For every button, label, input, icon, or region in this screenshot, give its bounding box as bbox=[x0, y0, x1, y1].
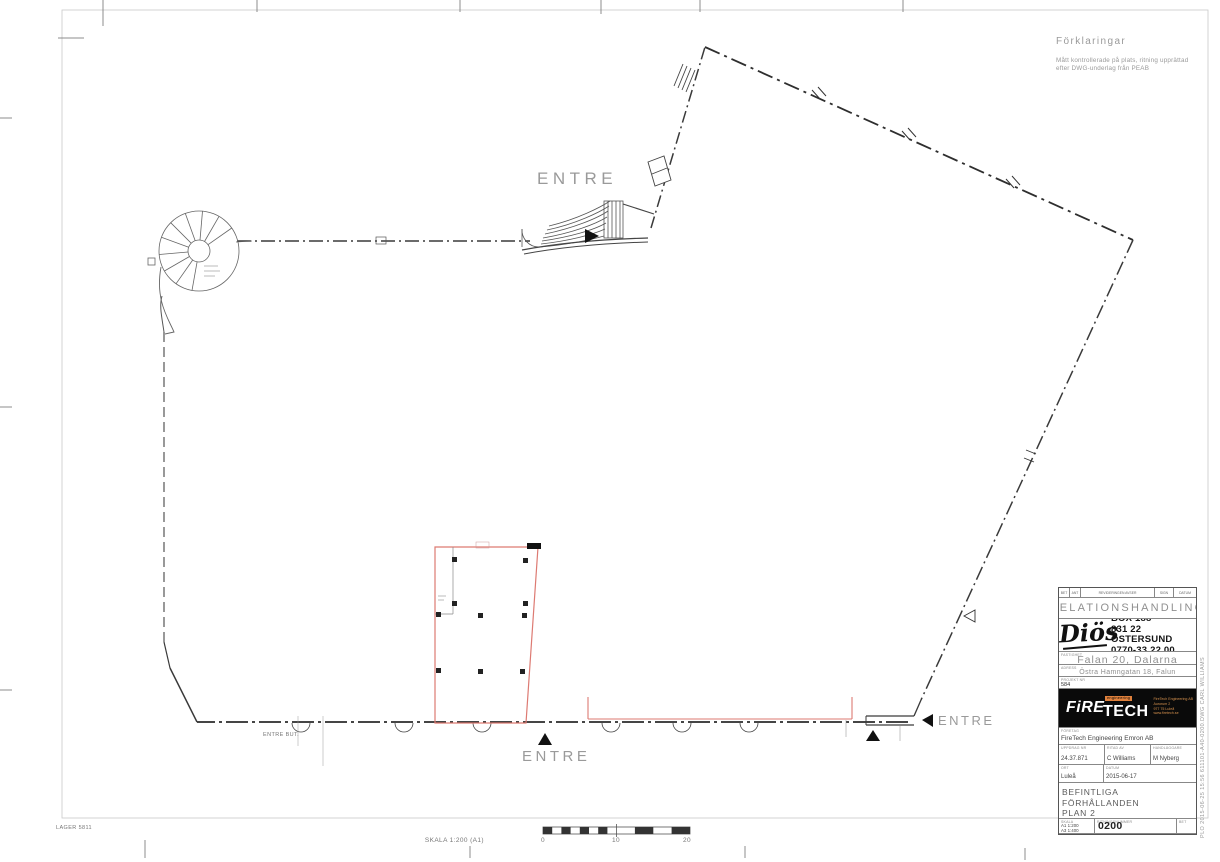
entre-right-label: ENTRE bbox=[938, 713, 995, 728]
dios-logo-text: Diös bbox=[1059, 620, 1119, 645]
assignment-row: UPPDRAG NR 24.37.871 RITAD AV C Williams… bbox=[1059, 745, 1196, 765]
firetech-logo-fire: FiRE bbox=[1066, 699, 1104, 717]
drawn-by-label: RITAD AV bbox=[1107, 746, 1124, 750]
diagonal-wall-ticks bbox=[812, 87, 1020, 188]
legend-line-2: efter DWG-underlag från PEAB bbox=[1056, 65, 1206, 73]
handler-cell: HANDLÄGGARE M Nyberg bbox=[1151, 745, 1196, 764]
entre-bottom-label: ENTRE bbox=[522, 748, 590, 765]
place-value: Luleå bbox=[1061, 774, 1076, 780]
legend-line-1: Mått kontrollerade på plats, ritning upp… bbox=[1056, 57, 1206, 65]
firetech-address: FireTech Engineering AB Aurorum 2 977 75… bbox=[1153, 697, 1193, 716]
address-value: Östra Hamngatan 18, Falun bbox=[1059, 665, 1196, 676]
place-label: ORT bbox=[1061, 766, 1069, 770]
scale-tick-20: 20 bbox=[683, 837, 691, 844]
drawn-by-cell: RITAD AV C Williams bbox=[1105, 745, 1151, 764]
rev-bet-header: BET bbox=[1059, 588, 1070, 597]
entre-butik-label: ENTRE BUT. bbox=[263, 732, 299, 738]
legend-block: Förklaringar Mått kontrollerade på plats… bbox=[1056, 36, 1206, 73]
drawn-by-value: C Williams bbox=[1107, 756, 1135, 762]
assignment-value: 24.37.871 bbox=[1061, 756, 1088, 762]
content-line-1: BEFINTLIGA FÖRHÅLLANDEN bbox=[1062, 787, 1196, 808]
assignment-cell: UPPDRAG NR 24.37.871 bbox=[1059, 745, 1105, 764]
rev-sign-header: SIGN bbox=[1155, 588, 1174, 597]
address-row: ADRESS Östra Hamngatan 18, Falun bbox=[1059, 665, 1196, 677]
date-label: DATUM bbox=[1106, 766, 1119, 770]
scale-tick-0: 0 bbox=[541, 837, 545, 844]
entrance-arrow-bottom bbox=[538, 733, 552, 745]
small-annotation-marks bbox=[204, 266, 220, 276]
date-cell: DATUM 2015-06-17 bbox=[1104, 765, 1196, 782]
document-status: RELATIONSHANDLING bbox=[1059, 602, 1196, 614]
legend-title: Förklaringar bbox=[1056, 36, 1206, 47]
drawing-sheet: ENTRE ENTRE ENTRE ENTRE BUT. LAGER 5811 … bbox=[0, 0, 1220, 862]
client-address: BOX 188 831 22 ÖSTERSUND 0770-33 22 00 bbox=[1111, 619, 1196, 652]
date-value: 2015-06-17 bbox=[1106, 774, 1137, 780]
building-outline bbox=[161, 47, 1133, 722]
floor-plan-canvas: ENTRE ENTRE ENTRE ENTRE BUT. LAGER 5811 … bbox=[0, 0, 1220, 862]
drawing-content-row: BEFINTLIGA FÖRHÅLLANDEN PLAN 2 ÖVERSIKT bbox=[1059, 783, 1196, 819]
revision-header-row: BET ANT REVIDERINGEN AVSER SIGN DATUM bbox=[1059, 588, 1196, 598]
project-row: PROJEKT NR 584 bbox=[1059, 677, 1196, 689]
rev-avser-header: REVIDERINGEN AVSER bbox=[1081, 588, 1155, 597]
red-marked-room bbox=[435, 542, 541, 723]
entrance-arrow-right bbox=[922, 714, 933, 727]
drawing-number-value: 611101-A40-0200 bbox=[1098, 819, 1176, 832]
rev-ant-header: ANT bbox=[1070, 588, 1081, 597]
scale-bar-label: SKALA 1:200 (A1) bbox=[425, 837, 484, 844]
document-status-row: RELATIONSHANDLING bbox=[1059, 598, 1196, 619]
wall-box bbox=[648, 156, 671, 186]
red-marked-wall bbox=[588, 697, 852, 719]
assignment-label: UPPDRAG NR bbox=[1061, 746, 1086, 750]
property-row: FASTIGHET Falan 20, Dalarna bbox=[1059, 652, 1196, 665]
lager-label: LAGER 5811 bbox=[56, 825, 92, 831]
content-line-2: PLAN 2 bbox=[1062, 808, 1196, 819]
entre-butik-lines bbox=[298, 716, 323, 766]
firetech-logo-engineering: engineering bbox=[1105, 696, 1132, 701]
hatch-element bbox=[674, 64, 695, 92]
fold-marks bbox=[0, 0, 1025, 860]
firetech-logo-tech: TECH bbox=[1103, 703, 1149, 721]
place-cell: ORT Luleå bbox=[1059, 765, 1104, 782]
project-label: PROJEKT NR bbox=[1061, 678, 1085, 682]
dios-logo: Diös bbox=[1059, 622, 1111, 648]
right-wall-details bbox=[964, 450, 1036, 622]
rev-datum-header: DATUM bbox=[1174, 588, 1196, 597]
handler-label: HANDLÄGGARE bbox=[1153, 746, 1182, 750]
drawing-number-cell: RITNINGSNUMMER 611101-A40-0200 bbox=[1095, 819, 1177, 833]
scale-a3: A3 1:400 bbox=[1061, 828, 1079, 833]
sheet-frame bbox=[62, 10, 1208, 818]
entre-top-label: ENTRE bbox=[537, 169, 617, 188]
number-row: SKALA A1 1:200 A3 1:400 RITNINGSNUMMER 6… bbox=[1059, 819, 1196, 834]
firetech-address-4: www.firetech.se bbox=[1153, 711, 1193, 716]
firetech-logo-band: FiRE engineering TECH FireTech Engineeri… bbox=[1059, 689, 1196, 728]
client-row: Diös BOX 188 831 22 ÖSTERSUND 0770-33 22… bbox=[1059, 619, 1196, 652]
room-annotation-marks bbox=[438, 596, 446, 600]
company-value: FireTech Engineering Emron AB bbox=[1059, 728, 1196, 742]
address-label: ADRESS bbox=[1061, 666, 1077, 670]
bottom-wall-doors bbox=[292, 723, 758, 732]
client-address-2: 831 22 ÖSTERSUND bbox=[1111, 625, 1196, 646]
property-label: FASTIGHET bbox=[1061, 653, 1082, 657]
fan-stair bbox=[522, 201, 654, 254]
handler-value: M Nyberg bbox=[1153, 756, 1179, 762]
scale-cell: SKALA A1 1:200 A3 1:400 bbox=[1059, 819, 1095, 833]
place-date-row: ORT Luleå DATUM 2015-06-17 bbox=[1059, 765, 1196, 783]
entrance-arrow-small bbox=[866, 730, 880, 741]
right-entrance-vestibule bbox=[846, 716, 914, 741]
spiral-stair bbox=[148, 211, 252, 334]
company-label: FÖRETAG bbox=[1061, 729, 1079, 733]
scale-tick-10: 10 bbox=[612, 837, 620, 844]
title-block: BET ANT REVIDERINGEN AVSER SIGN DATUM RE… bbox=[1058, 587, 1197, 835]
bet-label: BET bbox=[1179, 820, 1186, 824]
company-row: FÖRETAG FireTech Engineering Emron AB bbox=[1059, 728, 1196, 745]
bet-cell: BET bbox=[1177, 819, 1196, 833]
plot-stamp: PLO 2015-06-25 15:56 611101-A40-0200.DWG… bbox=[1200, 588, 1206, 838]
scale-bar: SKALA 1:200 (A1) 0 10 20 bbox=[425, 824, 691, 844]
columns bbox=[436, 557, 528, 674]
